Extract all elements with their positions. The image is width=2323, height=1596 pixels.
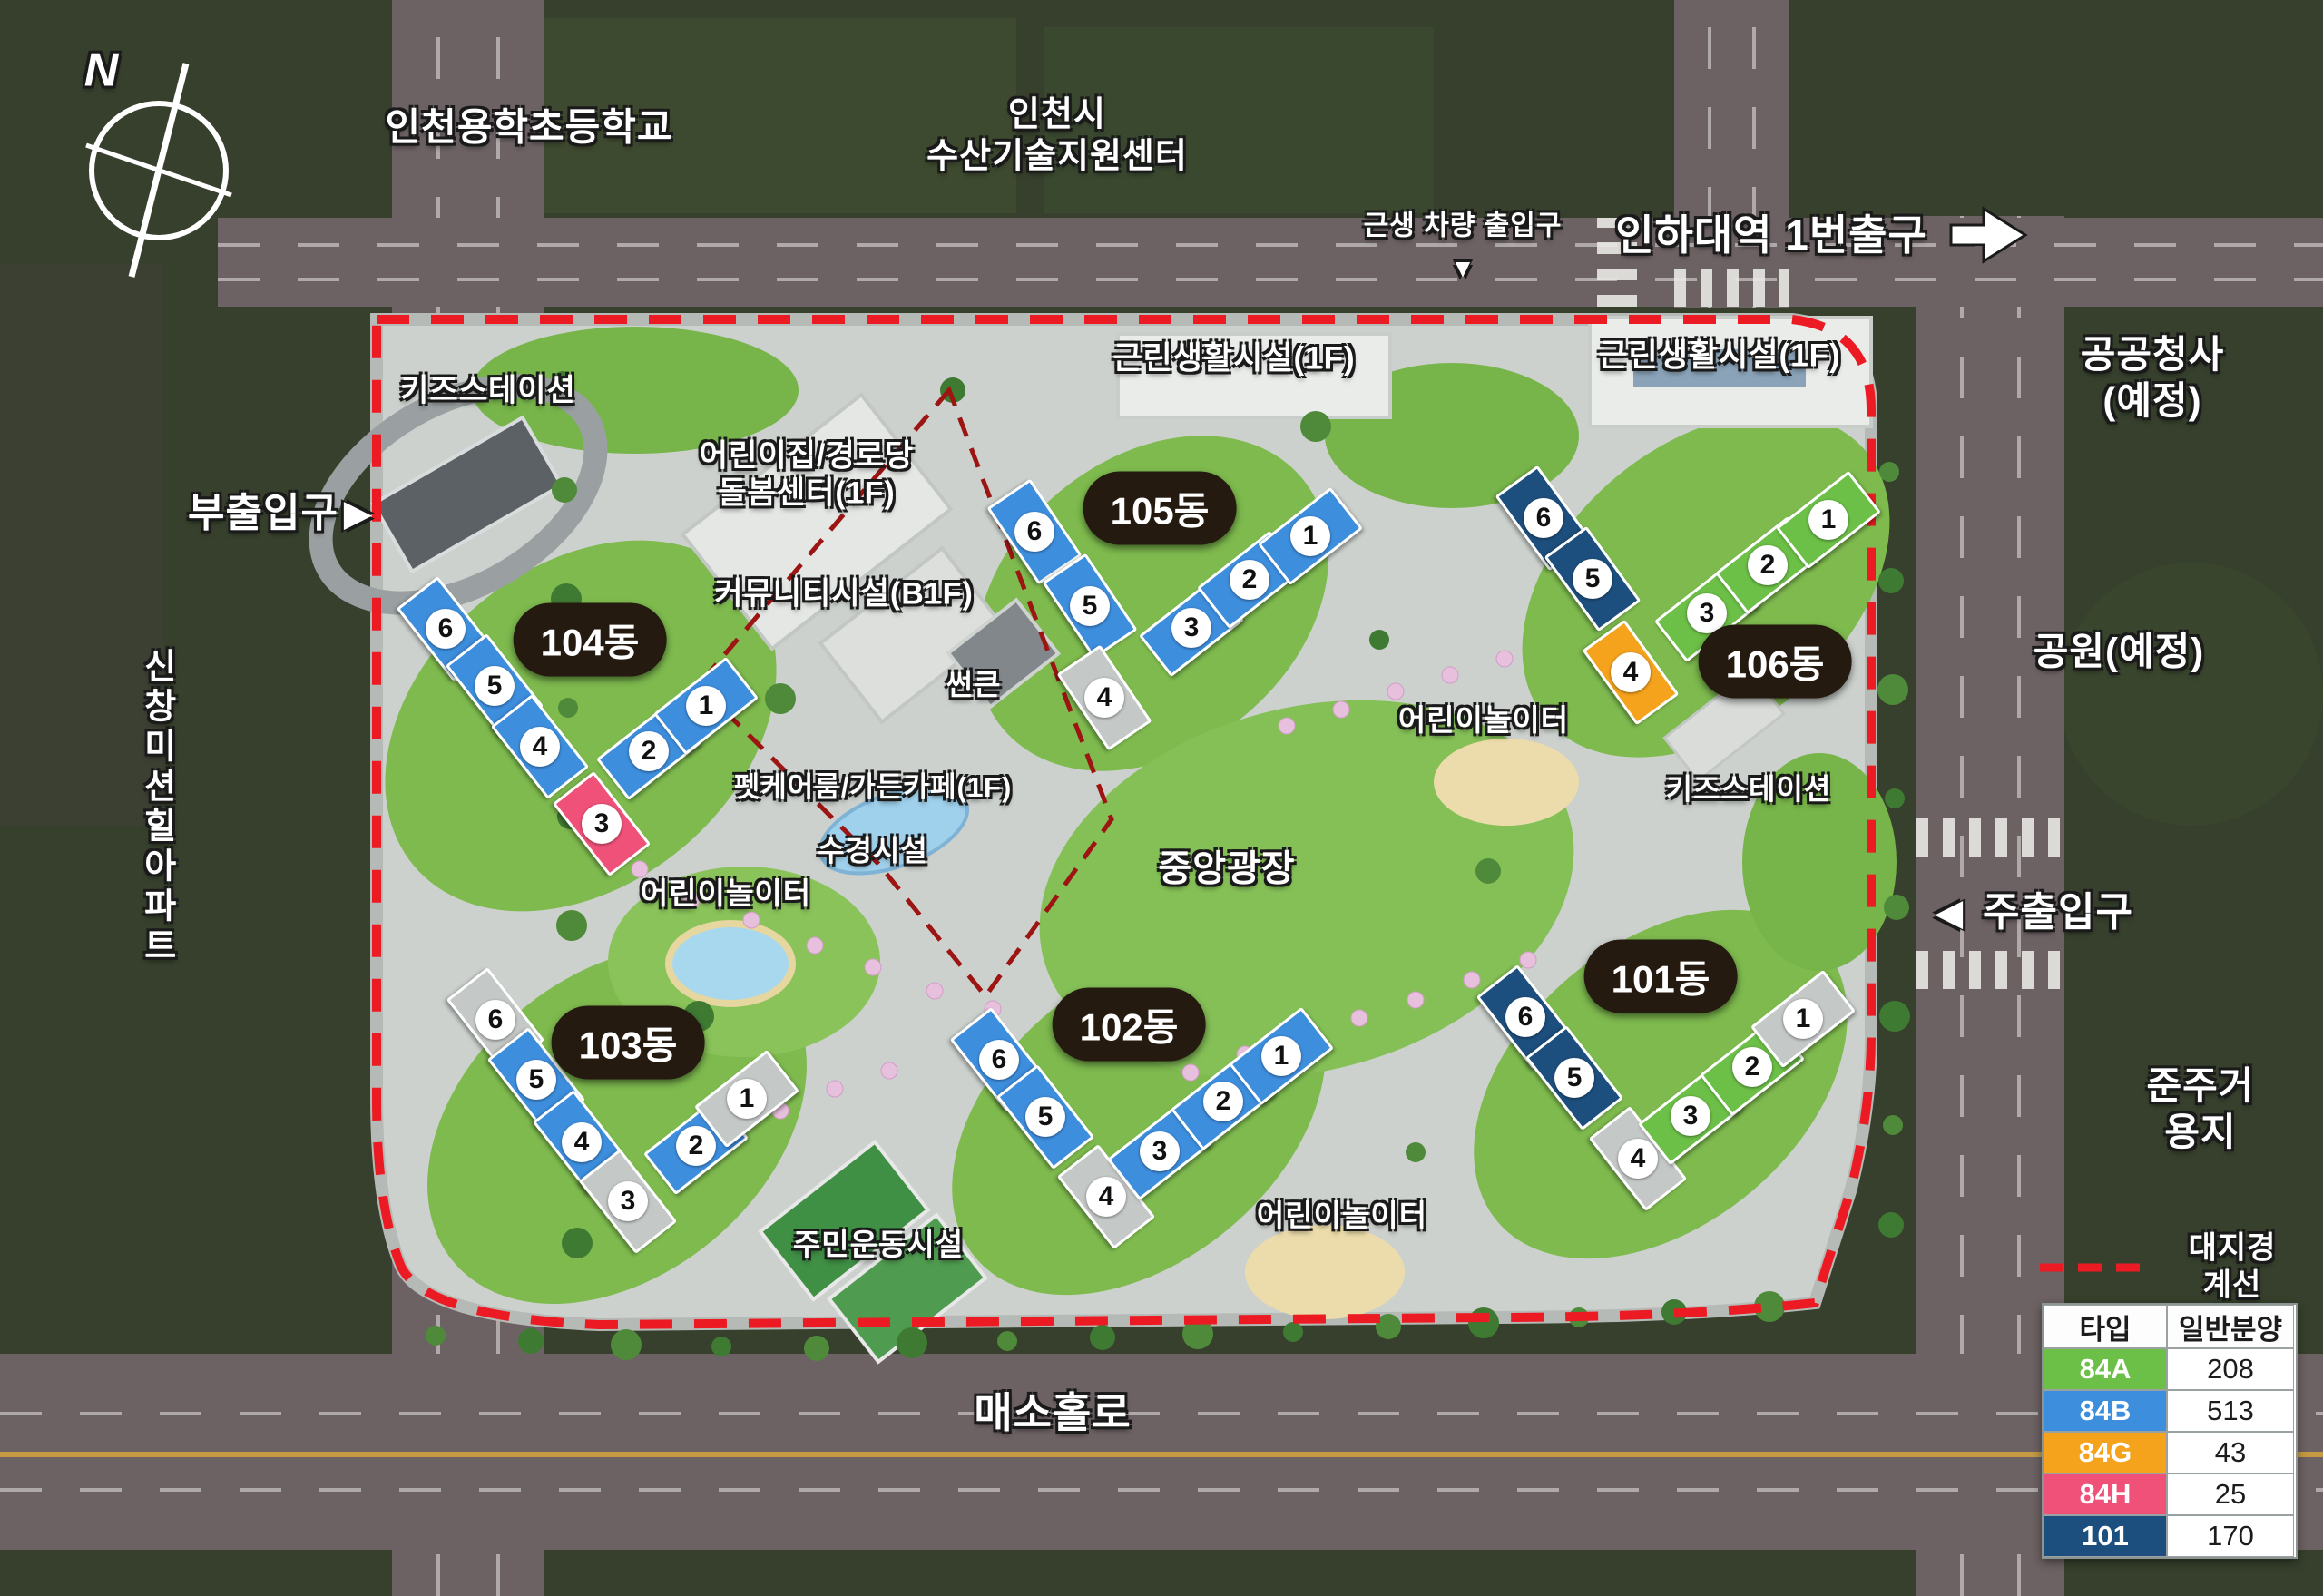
legend-header-type: 타입: [2044, 1305, 2167, 1348]
unit-number: 2: [676, 1126, 716, 1166]
label-playground-right: 어린이놀이터: [1398, 702, 1569, 739]
legend-row-101: 101170: [2044, 1515, 2296, 1557]
unit-number: 5: [1573, 559, 1612, 599]
unit-number: 2: [1203, 1082, 1243, 1121]
unit-number: 2: [1230, 560, 1269, 600]
label-sub-entrance: 부출입구: [188, 489, 338, 538]
retail-gate-arrow-icon: ▼: [1450, 254, 1475, 283]
building-105-badge: 105동: [1083, 472, 1237, 545]
label-station-exit: 인하대역 1번출구: [1615, 210, 1927, 260]
legend-row-84G: 84G43: [2044, 1432, 2296, 1474]
unit-number: 1: [727, 1079, 767, 1119]
label-central-plaza: 중앙광장: [1158, 847, 1295, 892]
legend-type: 101: [2044, 1515, 2167, 1557]
label-school: 인천용학초등학교: [385, 103, 672, 150]
label-sports: 주민운동시설: [793, 1227, 964, 1263]
unit-number: 1: [1783, 999, 1823, 1039]
unit-number: 4: [562, 1122, 602, 1162]
legend-count: 170: [2167, 1515, 2294, 1557]
unit-number: 3: [1140, 1131, 1180, 1171]
label-fisheries-center: 인천시 수산기술지원센터: [926, 94, 1188, 179]
unit-number: 3: [1671, 1096, 1710, 1136]
legend-count: 208: [2167, 1348, 2294, 1390]
legend-count: 25: [2167, 1474, 2294, 1515]
unit-number: 6: [1505, 997, 1545, 1037]
unit-number: 5: [1070, 586, 1110, 626]
label-public-office: 공공청사(예정): [2067, 331, 2238, 424]
legend-type: 84G: [2044, 1432, 2167, 1474]
site-plan-map: 654321104동654321105동654321106동654321103동…: [0, 0, 2323, 1596]
label-sunken: 썬큰: [946, 667, 1002, 702]
label-semi-residential: 준주거용지: [2140, 1062, 2262, 1155]
label-main-entrance: 주출입구: [1983, 888, 2133, 937]
unit-number: 2: [1732, 1047, 1772, 1087]
unit-number: 5: [1554, 1058, 1594, 1098]
unit-number: 6: [1524, 498, 1563, 538]
legend-type: 84A: [2044, 1348, 2167, 1390]
building-101-badge: 101동: [1584, 940, 1738, 1013]
building-102-badge: 102동: [1053, 988, 1206, 1062]
label-playground-center: 어린이놀이터: [641, 876, 811, 912]
label-park-planned: 공원(예정): [2034, 628, 2205, 674]
label-retail-vehicle-gate: 근생 차량 출입구: [1364, 211, 1563, 244]
unit-number: 6: [979, 1040, 1019, 1080]
sub-entrance-arrow-icon: ▶: [344, 494, 370, 534]
unit-number: 5: [1025, 1097, 1065, 1137]
unit-number: 4: [520, 727, 560, 767]
unit-number: 1: [1290, 516, 1330, 556]
unit-number: 6: [426, 609, 466, 649]
unit-number: 1: [1261, 1036, 1301, 1076]
legend-type: 84H: [2044, 1474, 2167, 1515]
legend-type: 84B: [2044, 1390, 2167, 1432]
label-mission-hill-apt: 신창미션힐아파트: [135, 648, 177, 967]
building-103-badge: 103동: [552, 1006, 705, 1080]
building-106-badge: 106동: [1699, 625, 1852, 699]
unit-number: 5: [475, 666, 515, 706]
label-maesohollo-road: 매소홀로: [974, 1387, 1131, 1438]
unit-number: 3: [608, 1181, 648, 1221]
unit-number: 1: [686, 686, 726, 726]
label-community: 커뮤니티시설(B1F): [714, 575, 974, 612]
unit-number: 6: [475, 1000, 515, 1040]
label-playground-bottom: 어린이놀이터: [1257, 1198, 1427, 1234]
legend-count: 513: [2167, 1390, 2294, 1432]
legend-row-84H: 84H25: [2044, 1474, 2296, 1515]
legend-boundary-label: 대지경계선: [2187, 1230, 2278, 1306]
unit-number: 6: [1014, 512, 1054, 552]
legend-count: 43: [2167, 1432, 2294, 1474]
buildings-layer: 654321104동654321105동654321106동654321103동…: [0, 0, 2323, 1596]
label-retail-2: 근린생활시설(1F): [1598, 338, 1840, 377]
building-105-unit-4: 4: [1056, 645, 1152, 751]
main-entrance-arrow-icon: ◀: [1936, 893, 1962, 934]
legend-header-sale: 일반분양: [2167, 1305, 2294, 1348]
building-104-badge: 104동: [514, 603, 667, 677]
label-petcare: 펫케어룸/가든카페(1F): [734, 770, 1013, 805]
unit-number: 4: [1084, 678, 1124, 718]
legend-table: 타입 일반분양 84A20884B51384G4384H25101170: [2042, 1303, 2298, 1559]
label-kids-station-left: 키즈스테이션: [400, 372, 576, 409]
unit-number: 2: [1748, 545, 1788, 585]
unit-number: 3: [582, 804, 622, 844]
compass-north-label: N: [84, 42, 120, 99]
unit-number: 1: [1808, 500, 1848, 540]
unit-number: 4: [1611, 652, 1651, 692]
label-kids-station-right: 키즈스테이션: [1666, 771, 1832, 807]
label-retail-1: 근린생활시설(1F): [1112, 340, 1355, 379]
legend-row-84A: 84A208: [2044, 1348, 2296, 1390]
unit-number: 4: [1618, 1139, 1658, 1179]
unit-number: 3: [1171, 608, 1211, 648]
legend-header-row: 타입 일반분양: [2044, 1305, 2296, 1348]
unit-number: 5: [516, 1060, 556, 1100]
unit-number: 2: [629, 731, 669, 771]
unit-number: 4: [1086, 1177, 1126, 1217]
legend-row-84B: 84B513: [2044, 1390, 2296, 1432]
label-daycare: 어린이집/경로당 돌봄센터(1F): [700, 438, 914, 514]
label-water-feature: 수경시설: [818, 833, 928, 868]
